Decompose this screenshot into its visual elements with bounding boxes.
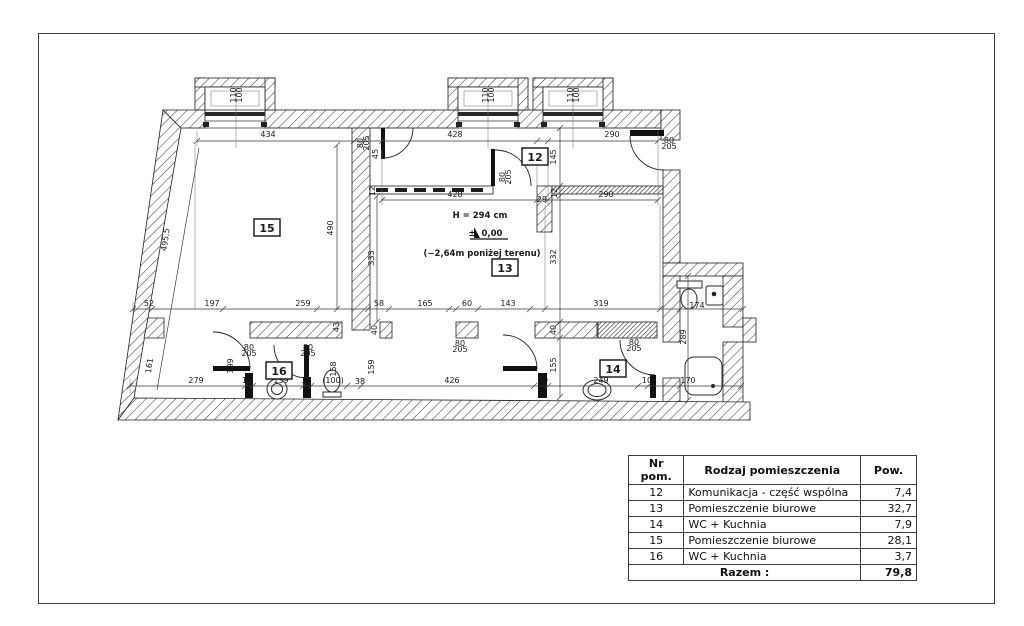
- dimension-label: 428: [447, 130, 462, 139]
- below-ground-note: (−2,64m poniżej terenu): [423, 249, 540, 259]
- ceiling-height-label: H = 294 cm: [453, 211, 508, 221]
- door-size-label: 80205: [626, 338, 641, 353]
- room-type-cell: WC + Kuchnia: [684, 549, 861, 565]
- dimension-label: 10: [242, 376, 252, 385]
- room-type-cell: Pomieszczenie biurowe: [684, 501, 861, 517]
- door-leaves: [213, 128, 664, 398]
- dimension-label: 10: [301, 376, 311, 385]
- window-size-label: 110100: [566, 87, 581, 102]
- room-number: 13: [497, 262, 512, 275]
- dimension-label: 12: [550, 188, 559, 198]
- dimension-label: 155: [549, 357, 558, 372]
- dimension-label: 45: [371, 149, 380, 159]
- room-area-cell: 32,7: [861, 501, 917, 517]
- room-area-cell: 28,1: [861, 533, 917, 549]
- dimension-label: 10: [642, 376, 652, 385]
- table-total-row: Razem : 79,8: [629, 565, 917, 581]
- dimension-label: 52: [144, 299, 154, 308]
- dimension-label: 12: [368, 186, 377, 196]
- room-area-table: Nr pom. Rodzaj pomieszczenia Pow. 12Komu…: [628, 455, 917, 581]
- dimension-label: 332: [549, 249, 558, 264]
- doors: [213, 128, 664, 398]
- dimension-label: 43: [332, 322, 341, 332]
- room-area-cell: 3,7: [861, 549, 917, 565]
- exterior-walls: [118, 110, 756, 420]
- col-header-number: Nr pom.: [629, 456, 684, 485]
- dimension-label: 40: [370, 325, 379, 335]
- dimension-label: 145: [549, 149, 558, 164]
- table-row: 13Pomieszczenie biurowe32,7: [629, 501, 917, 517]
- room-number: 15: [259, 222, 274, 235]
- room-number: 16: [271, 365, 287, 378]
- room-number: 14: [605, 363, 621, 376]
- room-number-cell: 16: [629, 549, 684, 565]
- door-size-label: 80205: [452, 339, 467, 354]
- toilet-tank-wc: [677, 281, 702, 288]
- table-row: 14WC + Kuchnia7,9: [629, 517, 917, 533]
- room-number-cell: 12: [629, 485, 684, 501]
- dimension-label: 29: [537, 195, 547, 204]
- window-size-label: 110100: [229, 87, 244, 102]
- dimension-label: 161: [144, 357, 155, 373]
- room-type-cell: Komunikacja - część wspólna: [684, 485, 861, 501]
- room-number-cell: 14: [629, 517, 684, 533]
- level-mark-icon: [474, 227, 480, 238]
- room-number-cell: 15: [629, 533, 684, 549]
- window-size-label: 110100: [481, 87, 496, 102]
- dimension-label: 279: [188, 376, 203, 385]
- dimension-label: 159: [367, 359, 376, 374]
- dimension-label: 165: [417, 299, 432, 308]
- table-header-row: Nr pom. Rodzaj pomieszczenia Pow.: [629, 456, 917, 485]
- dimension-label: 319: [593, 299, 608, 308]
- dimension-label: 60: [462, 299, 472, 308]
- col-header-area: Pow.: [861, 456, 917, 485]
- dimension-label: 58: [374, 299, 384, 308]
- room-area-cell: 7,9: [861, 517, 917, 533]
- scanned-floor-plan-page: 43442829042829290121214545490333332495,5…: [0, 0, 1024, 626]
- dimension-label: 434: [260, 130, 275, 139]
- dimension-label: 426: [444, 376, 459, 385]
- total-value: 79,8: [861, 565, 917, 581]
- door-size-label: 80205: [498, 169, 513, 184]
- room-number-cell: 13: [629, 501, 684, 517]
- dimension-label: 143: [500, 299, 515, 308]
- table-row: 16WC + Kuchnia3,7: [629, 549, 917, 565]
- room-number: 12: [527, 151, 542, 164]
- dimension-label: 158: [329, 361, 338, 376]
- col-header-type: Rodzaj pomieszczenia: [684, 456, 861, 485]
- door-size-label: 80205: [300, 343, 315, 358]
- dimension-label: 199: [226, 358, 235, 373]
- room-type-cell: WC + Kuchnia: [684, 517, 861, 533]
- dimension-label: 39: [538, 376, 548, 385]
- room-type-cell: Pomieszczenie biurowe: [684, 533, 861, 549]
- dimension-label: 289: [679, 329, 688, 344]
- dimension-label: 174: [689, 301, 704, 310]
- total-label: Razem :: [629, 565, 861, 581]
- door-size-label: 80205: [241, 343, 256, 358]
- dimension-label: 259: [295, 299, 310, 308]
- dimension-label: 38: [355, 377, 365, 386]
- dimension-label: 170: [680, 376, 695, 385]
- dimension-label: 290: [598, 190, 613, 199]
- level-value: 0,00: [482, 229, 503, 239]
- dimension-label: 290: [604, 130, 619, 139]
- annotations: H = 294 cm ± 0,00 (−2,64m poniżej terenu…: [423, 211, 540, 259]
- table-row: 15Pomieszczenie biurowe28,1: [629, 533, 917, 549]
- dimension-label: 197: [204, 299, 219, 308]
- table-row: 12Komunikacja - część wspólna7,4: [629, 485, 917, 501]
- room-area-cell: 7,4: [861, 485, 917, 501]
- dimension-label: 495,5: [159, 228, 171, 252]
- dimension-label: 333: [367, 250, 376, 265]
- dimension-label: 490: [326, 220, 335, 235]
- dimension-label: 428: [447, 190, 462, 199]
- dimension-label: 40: [549, 325, 558, 335]
